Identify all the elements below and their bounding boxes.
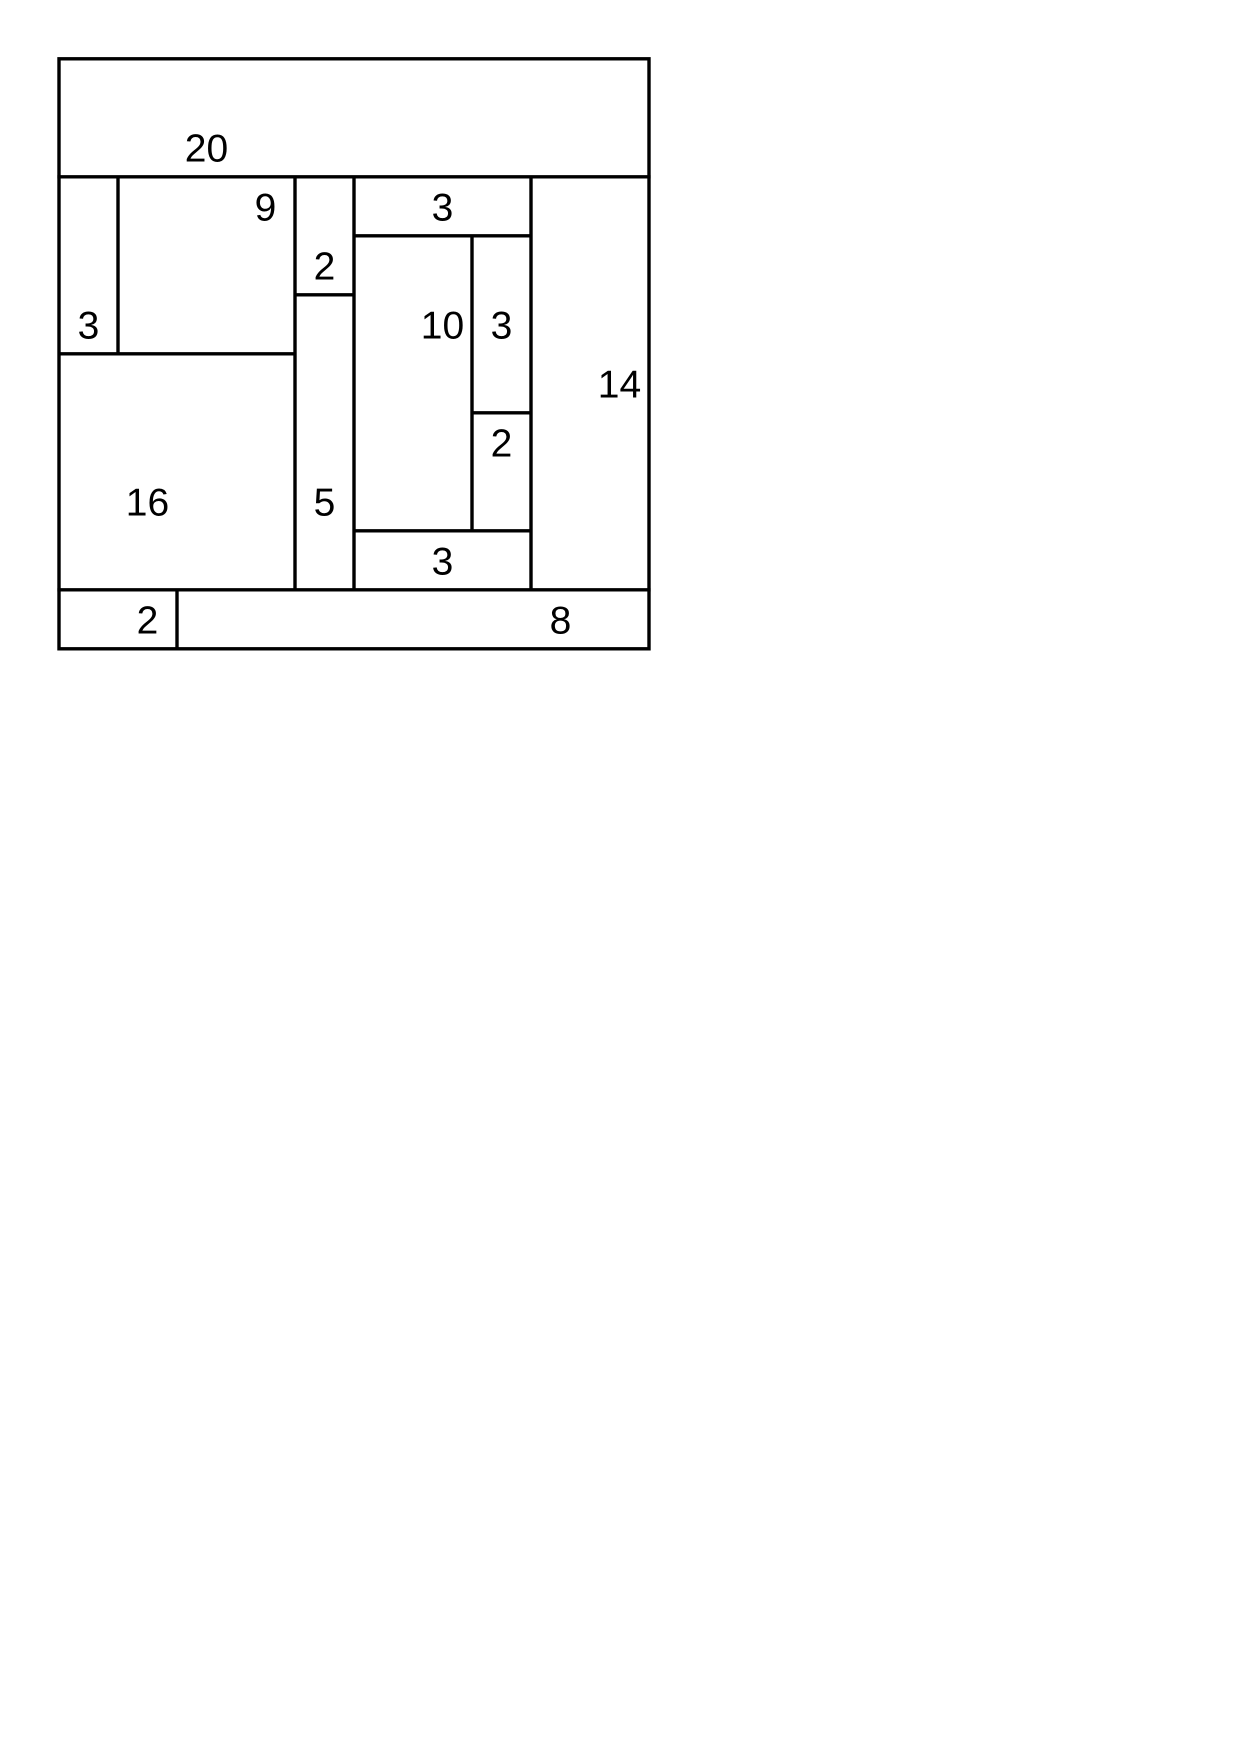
svg-text:3: 3	[432, 187, 454, 230]
svg-text:14: 14	[598, 364, 641, 407]
svg-text:9: 9	[255, 187, 277, 230]
svg-text:10: 10	[421, 305, 464, 348]
svg-text:3: 3	[78, 305, 100, 348]
svg-text:5: 5	[314, 482, 336, 525]
svg-text:16: 16	[126, 482, 169, 525]
svg-text:2: 2	[137, 600, 159, 643]
svg-text:2: 2	[314, 246, 336, 289]
svg-text:3: 3	[491, 305, 513, 348]
svg-text:20: 20	[185, 128, 228, 171]
svg-text:3: 3	[432, 541, 454, 584]
svg-text:8: 8	[550, 600, 572, 643]
svg-text:2: 2	[491, 423, 513, 466]
